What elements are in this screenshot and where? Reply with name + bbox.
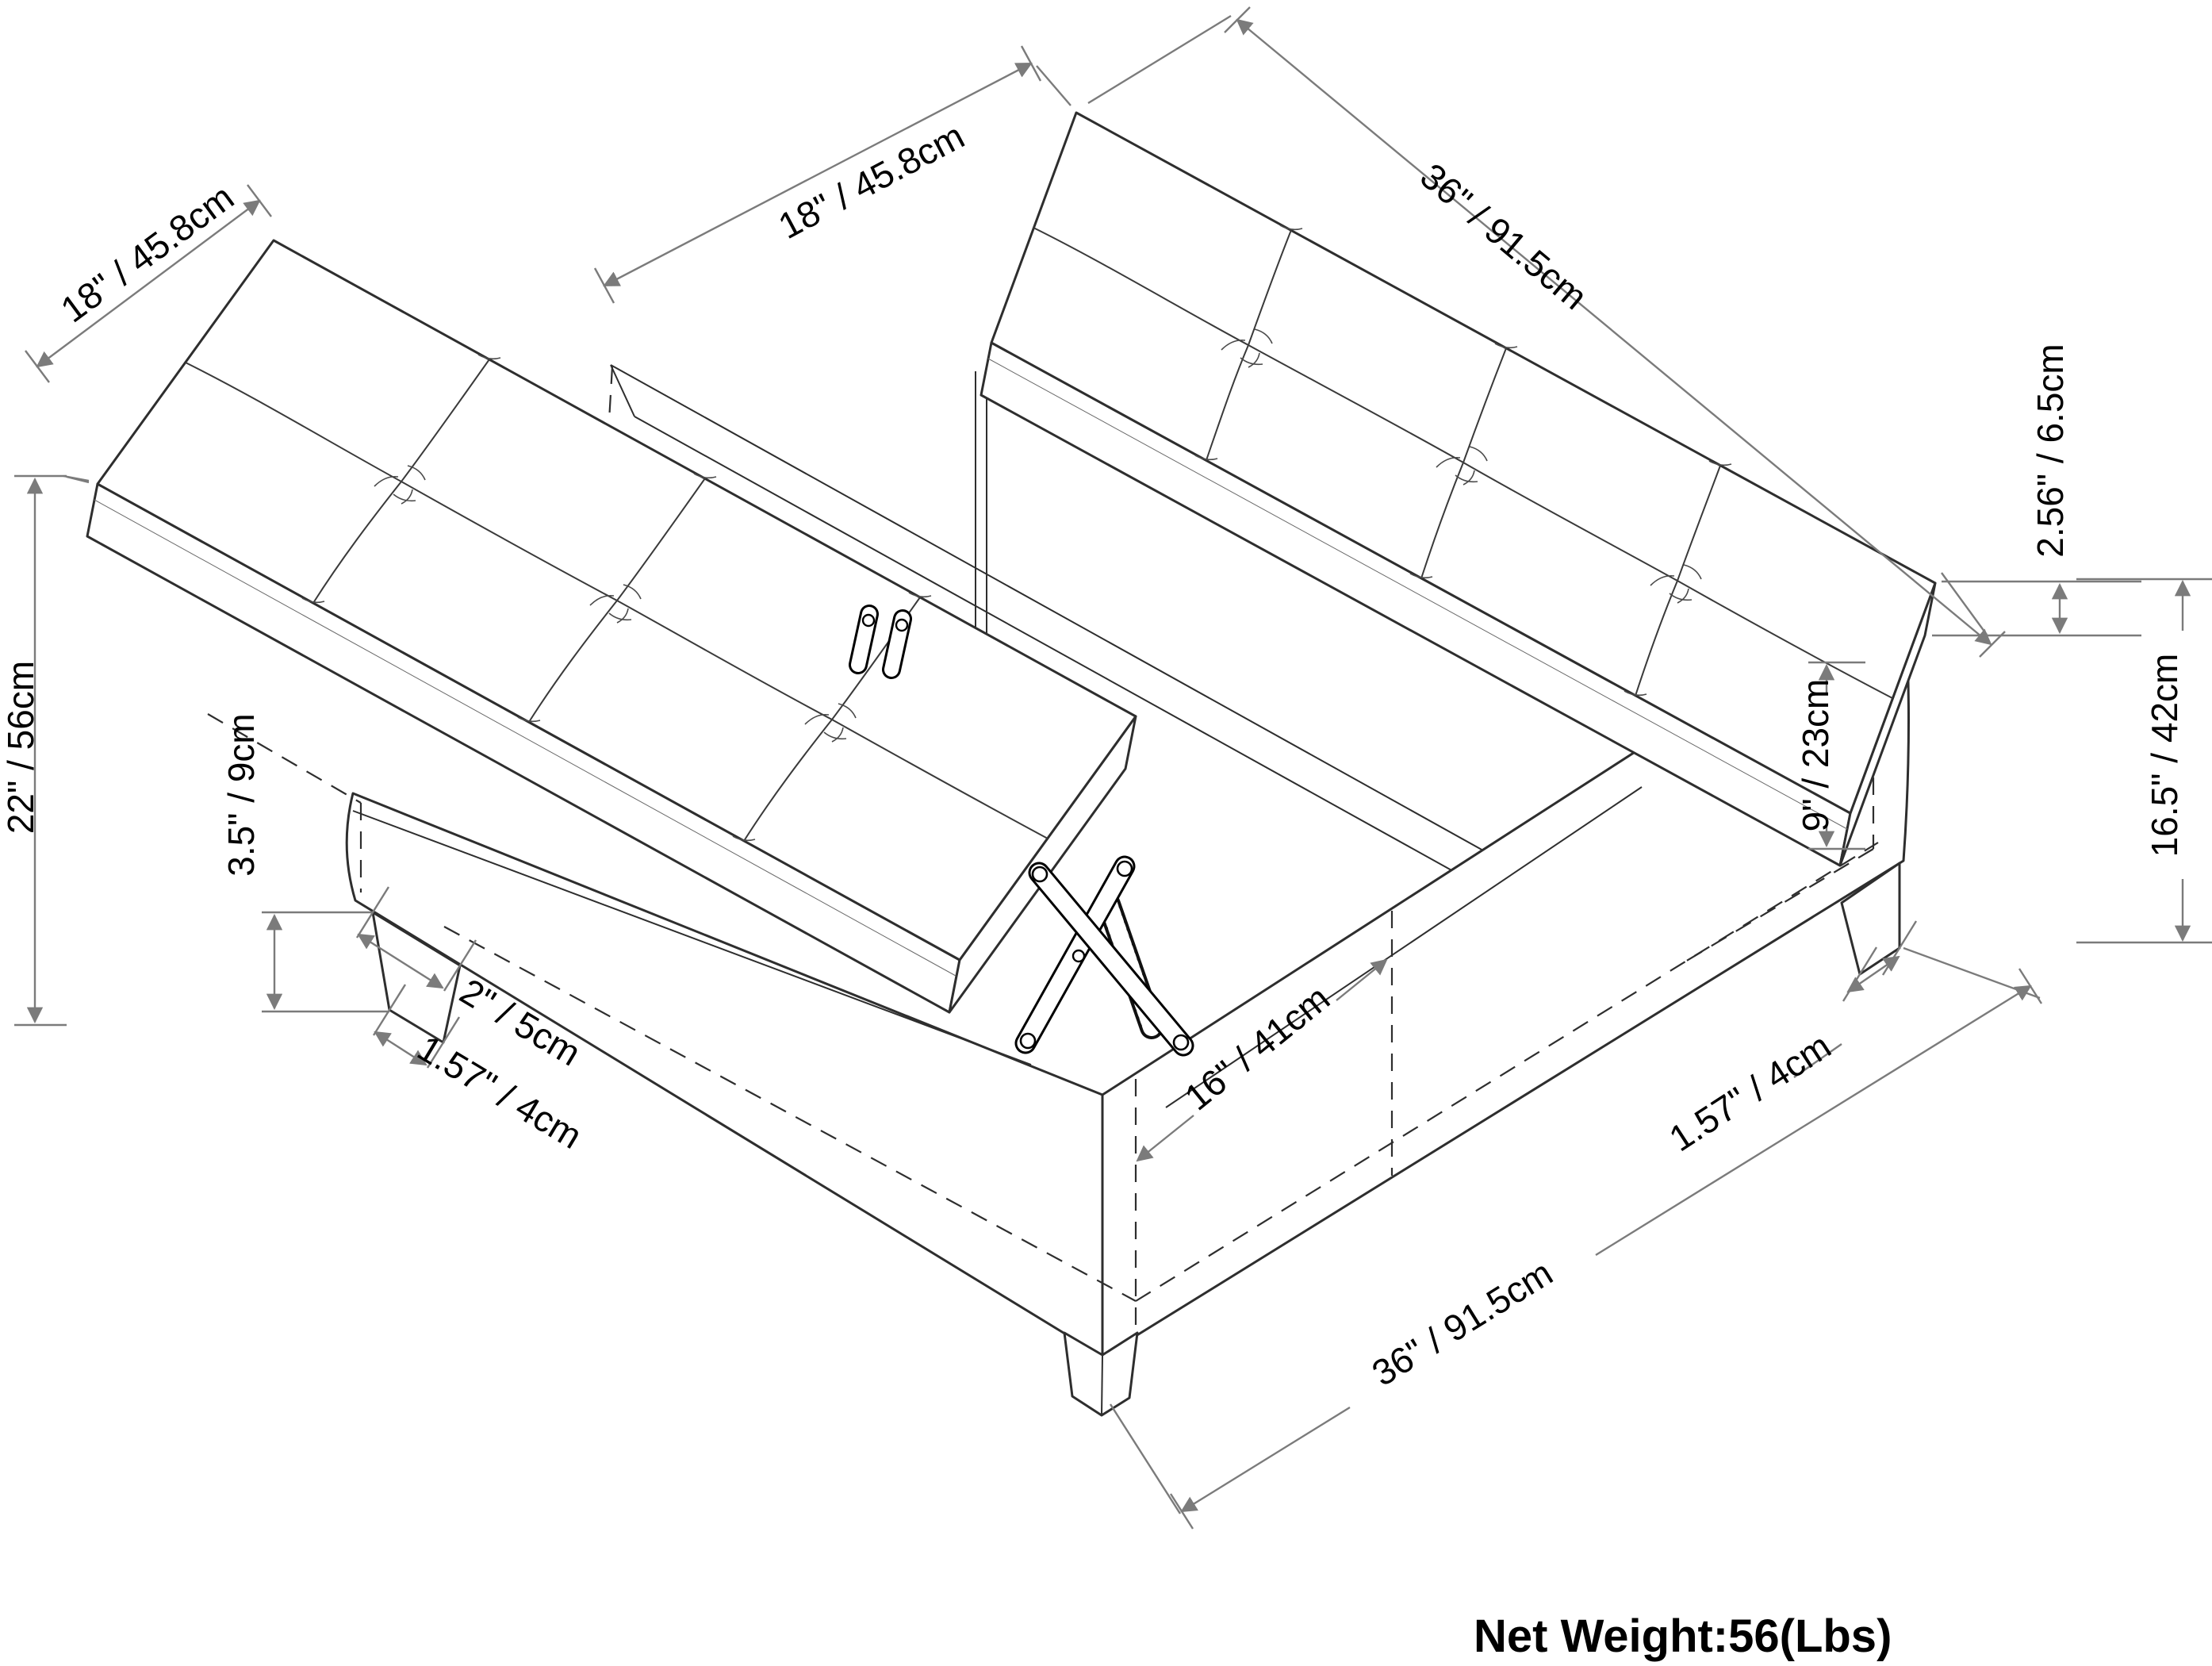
dim-label-left-lid-width: 18" / 45.8cm [53, 176, 241, 330]
dim-cushion-thickness: 2.56" / 6.5cm [1932, 344, 2141, 635]
dim-label-base-length: 36" / 91.5cm [1365, 1252, 1560, 1394]
dim-label-leg-bottom-width-right: 1.57" / 4cm [1662, 1025, 1838, 1159]
dim-label-total-height: 22" / 56cm [0, 661, 41, 834]
dim-label-storage-depth: 9" / 23cm [1795, 679, 1836, 832]
scissor-hinge [1021, 862, 1188, 1050]
dim-right-lid-width: 18" / 45.8cm [595, 46, 1071, 303]
dim-label-base-height: 16.5" / 42cm [2144, 654, 2185, 858]
dim-total-height: 22" / 56cm [0, 476, 89, 1025]
dim-label-right-lid-length: 36" / 91.5cm [1413, 155, 1595, 317]
dim-base-height: 16.5" / 42cm [2076, 579, 2212, 942]
ottoman-dimension-diagram: 18" / 45.8cm 18" / 45.8cm 36" / 91.5cm 2… [0, 0, 2212, 1666]
diagram-canvas: 18" / 45.8cm 18" / 45.8cm 36" / 91.5cm 2… [0, 0, 2212, 1666]
net-weight-text: Net Weight:56(Lbs) [1474, 1610, 1892, 1662]
dim-label-right-lid-width: 18" / 45.8cm [772, 115, 971, 247]
dim-label-cushion-thickness: 2.56" / 6.5cm [2030, 344, 2071, 557]
dim-label-leg-height: 3.5" / 9cm [220, 713, 262, 877]
